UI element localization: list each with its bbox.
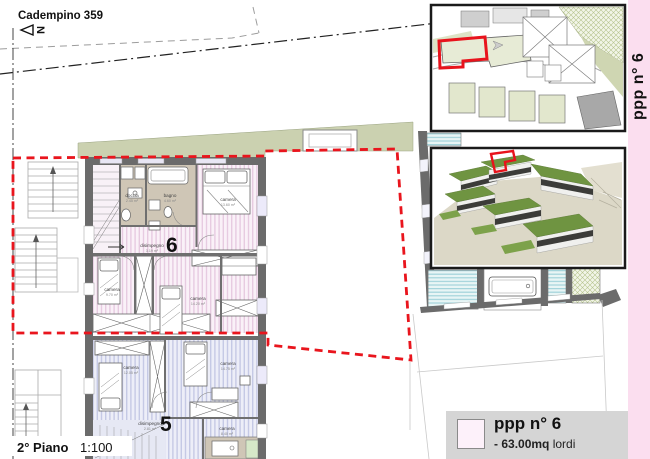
legend-title: ppp n° 6 bbox=[494, 414, 561, 434]
svg-text:disimpegno: disimpegno bbox=[138, 421, 162, 426]
green-roof-band bbox=[78, 122, 413, 158]
svg-text:8.40 m²: 8.40 m² bbox=[221, 432, 234, 436]
svg-text:13.60 m²: 13.60 m² bbox=[221, 203, 236, 207]
svg-text:doccia: doccia bbox=[125, 193, 139, 198]
svg-text:camera: camera bbox=[220, 197, 236, 202]
side-strip-label: ppp n° 6 bbox=[630, 53, 648, 120]
drawing-sheet: Cadempino 359 N bbox=[0, 0, 650, 459]
svg-text:2.45 m²: 2.45 m² bbox=[126, 199, 139, 203]
unit5-number: 5 bbox=[160, 413, 172, 436]
svg-text:camera: camera bbox=[104, 287, 120, 292]
unit6-area: doccia 2.45 m² bagno 4.60 m² disimpegno … bbox=[93, 165, 266, 334]
exterior-stairs bbox=[15, 162, 78, 440]
legend-area-value: 63.00mq bbox=[501, 437, 549, 451]
svg-text:4.60 m²: 4.60 m² bbox=[164, 199, 177, 203]
svg-text:2° Piano: 2° Piano bbox=[17, 440, 68, 455]
svg-text:N: N bbox=[34, 26, 46, 34]
svg-text:3.19 m²: 3.19 m² bbox=[146, 249, 159, 253]
legend-area-prefix: - bbox=[494, 437, 498, 451]
sheet-title: Cadempino 359 bbox=[18, 10, 103, 22]
legend-area: - 63.00mq lordi bbox=[494, 437, 575, 451]
svg-text:camera: camera bbox=[123, 365, 139, 370]
svg-text:camera: camera bbox=[190, 296, 206, 301]
inset-3d-render bbox=[431, 148, 625, 268]
bed-double bbox=[203, 169, 250, 214]
inset-site-plan bbox=[431, 5, 625, 131]
svg-text:disimpegno: disimpegno bbox=[140, 243, 164, 248]
legend-area-unit: lordi bbox=[553, 437, 576, 451]
svg-text:1:100: 1:100 bbox=[80, 440, 113, 455]
svg-text:camera: camera bbox=[219, 426, 235, 431]
svg-text:camera: camera bbox=[220, 361, 236, 366]
svg-text:14.20 m²: 14.20 m² bbox=[191, 302, 206, 306]
legend-swatch bbox=[457, 419, 485, 449]
svg-text:14.75 m²: 14.75 m² bbox=[221, 367, 236, 371]
unit6-number: 6 bbox=[166, 234, 178, 257]
north-arrow-icon: N bbox=[21, 25, 46, 35]
floor-plan-canvas: Cadempino 359 N bbox=[0, 0, 650, 459]
scale-label: 2° Piano 1:100 bbox=[12, 436, 132, 456]
legend: ppp n° 6 - 63.00mq lordi bbox=[446, 411, 628, 459]
svg-text:2.81 m²: 2.81 m² bbox=[144, 427, 157, 431]
svg-text:9.70 m²: 9.70 m² bbox=[106, 293, 119, 297]
svg-text:12.05 m²: 12.05 m² bbox=[124, 371, 139, 375]
svg-text:bagno: bagno bbox=[164, 193, 177, 198]
